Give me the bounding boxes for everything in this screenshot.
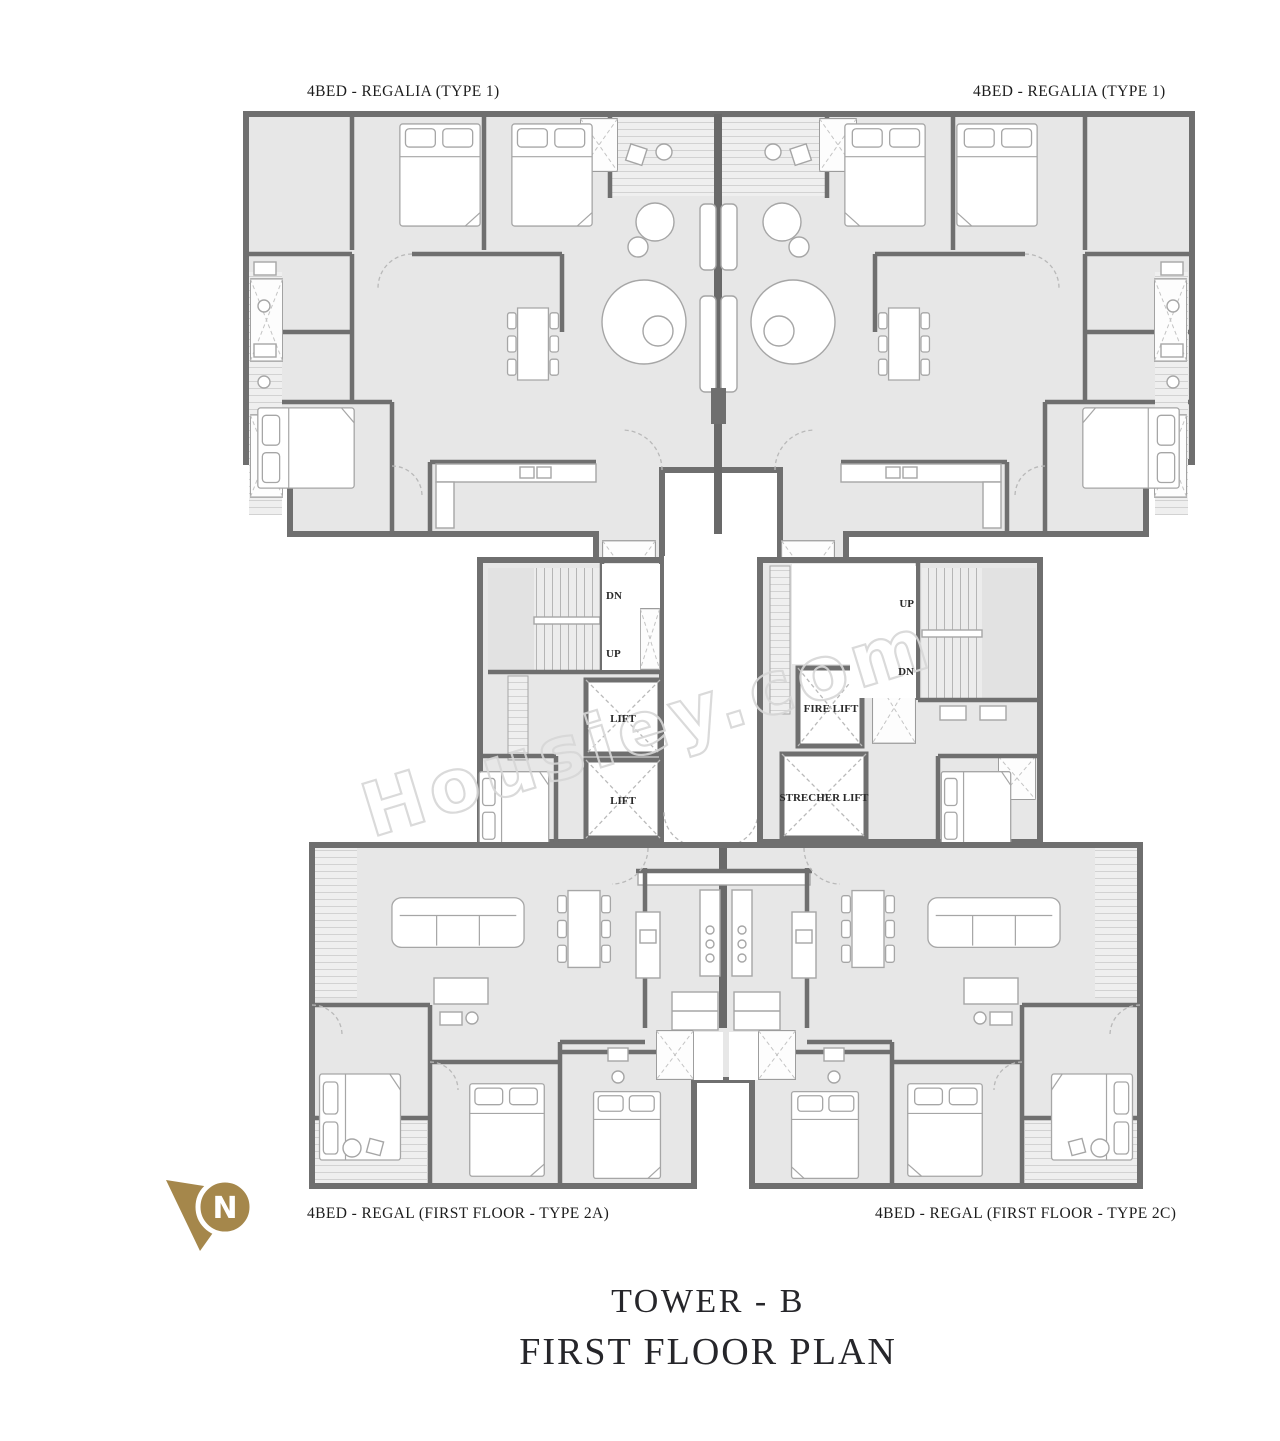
bed-icon [470, 1084, 545, 1177]
bed-icon [512, 124, 592, 226]
left-stair-up-label: UP [606, 648, 621, 660]
lift-top-label: LIFT [610, 713, 636, 725]
unit-label-bottom-left: 4BED - REGAL (FIRST FLOOR - TYPE 2A) [307, 1205, 609, 1222]
fire-lift-label: FIRE LIFT [804, 703, 859, 715]
unit-label-top-left: 4BED - REGALIA (TYPE 1) [307, 83, 500, 100]
bed-icon [941, 772, 1010, 845]
bed-icon [594, 1092, 661, 1179]
unit-label-bottom-right: 4BED - REGAL (FIRST FLOOR - TYPE 2C) [875, 1205, 1176, 1222]
bottom-wing [312, 845, 1140, 1186]
north-letter: N [212, 1191, 237, 1226]
bed-icon [400, 124, 480, 226]
sofa-icon [392, 898, 524, 948]
duct-shaft-icon [656, 1031, 693, 1080]
plan-title-line1: TOWER - B [611, 1283, 805, 1320]
lift-bottom-label: LIFT [610, 795, 636, 807]
left-staircase [488, 560, 662, 672]
dining-table-icon [508, 308, 559, 380]
kitchen-counter-icon [436, 464, 596, 482]
round-sofa-icon [602, 280, 686, 364]
right-stair-dn-label: DN [898, 666, 914, 678]
plan-title-line2: FIRST FLOOR PLAN [519, 1331, 897, 1373]
bed-icon [258, 408, 354, 488]
coffee-table-icon [434, 978, 488, 1004]
unit-label-top-right: 4BED - REGALIA (TYPE 1) [973, 83, 1166, 100]
kitchen-counter-icon [700, 890, 720, 976]
stretcher-lift-label: STRECHER LIFT [780, 792, 870, 804]
floor-plan-drawing: Housiey.com DN UP UP DN LIFT LIFT FIRE L… [0, 0, 1280, 1441]
top-wing [246, 114, 1192, 622]
right-stair-up-label: UP [899, 598, 914, 610]
duct-shaft-icon [640, 609, 660, 670]
north-indicator: N [166, 1180, 252, 1251]
armchair-icon [636, 203, 674, 241]
floor-plan-page: Housiey.com DN UP UP DN LIFT LIFT FIRE L… [0, 0, 1280, 1441]
title-block: TOWER - B FIRST FLOOR PLAN [519, 1283, 897, 1373]
kitchen-bar [638, 872, 810, 885]
left-stair-dn-label: DN [606, 590, 622, 602]
dining-table-icon [558, 891, 611, 968]
